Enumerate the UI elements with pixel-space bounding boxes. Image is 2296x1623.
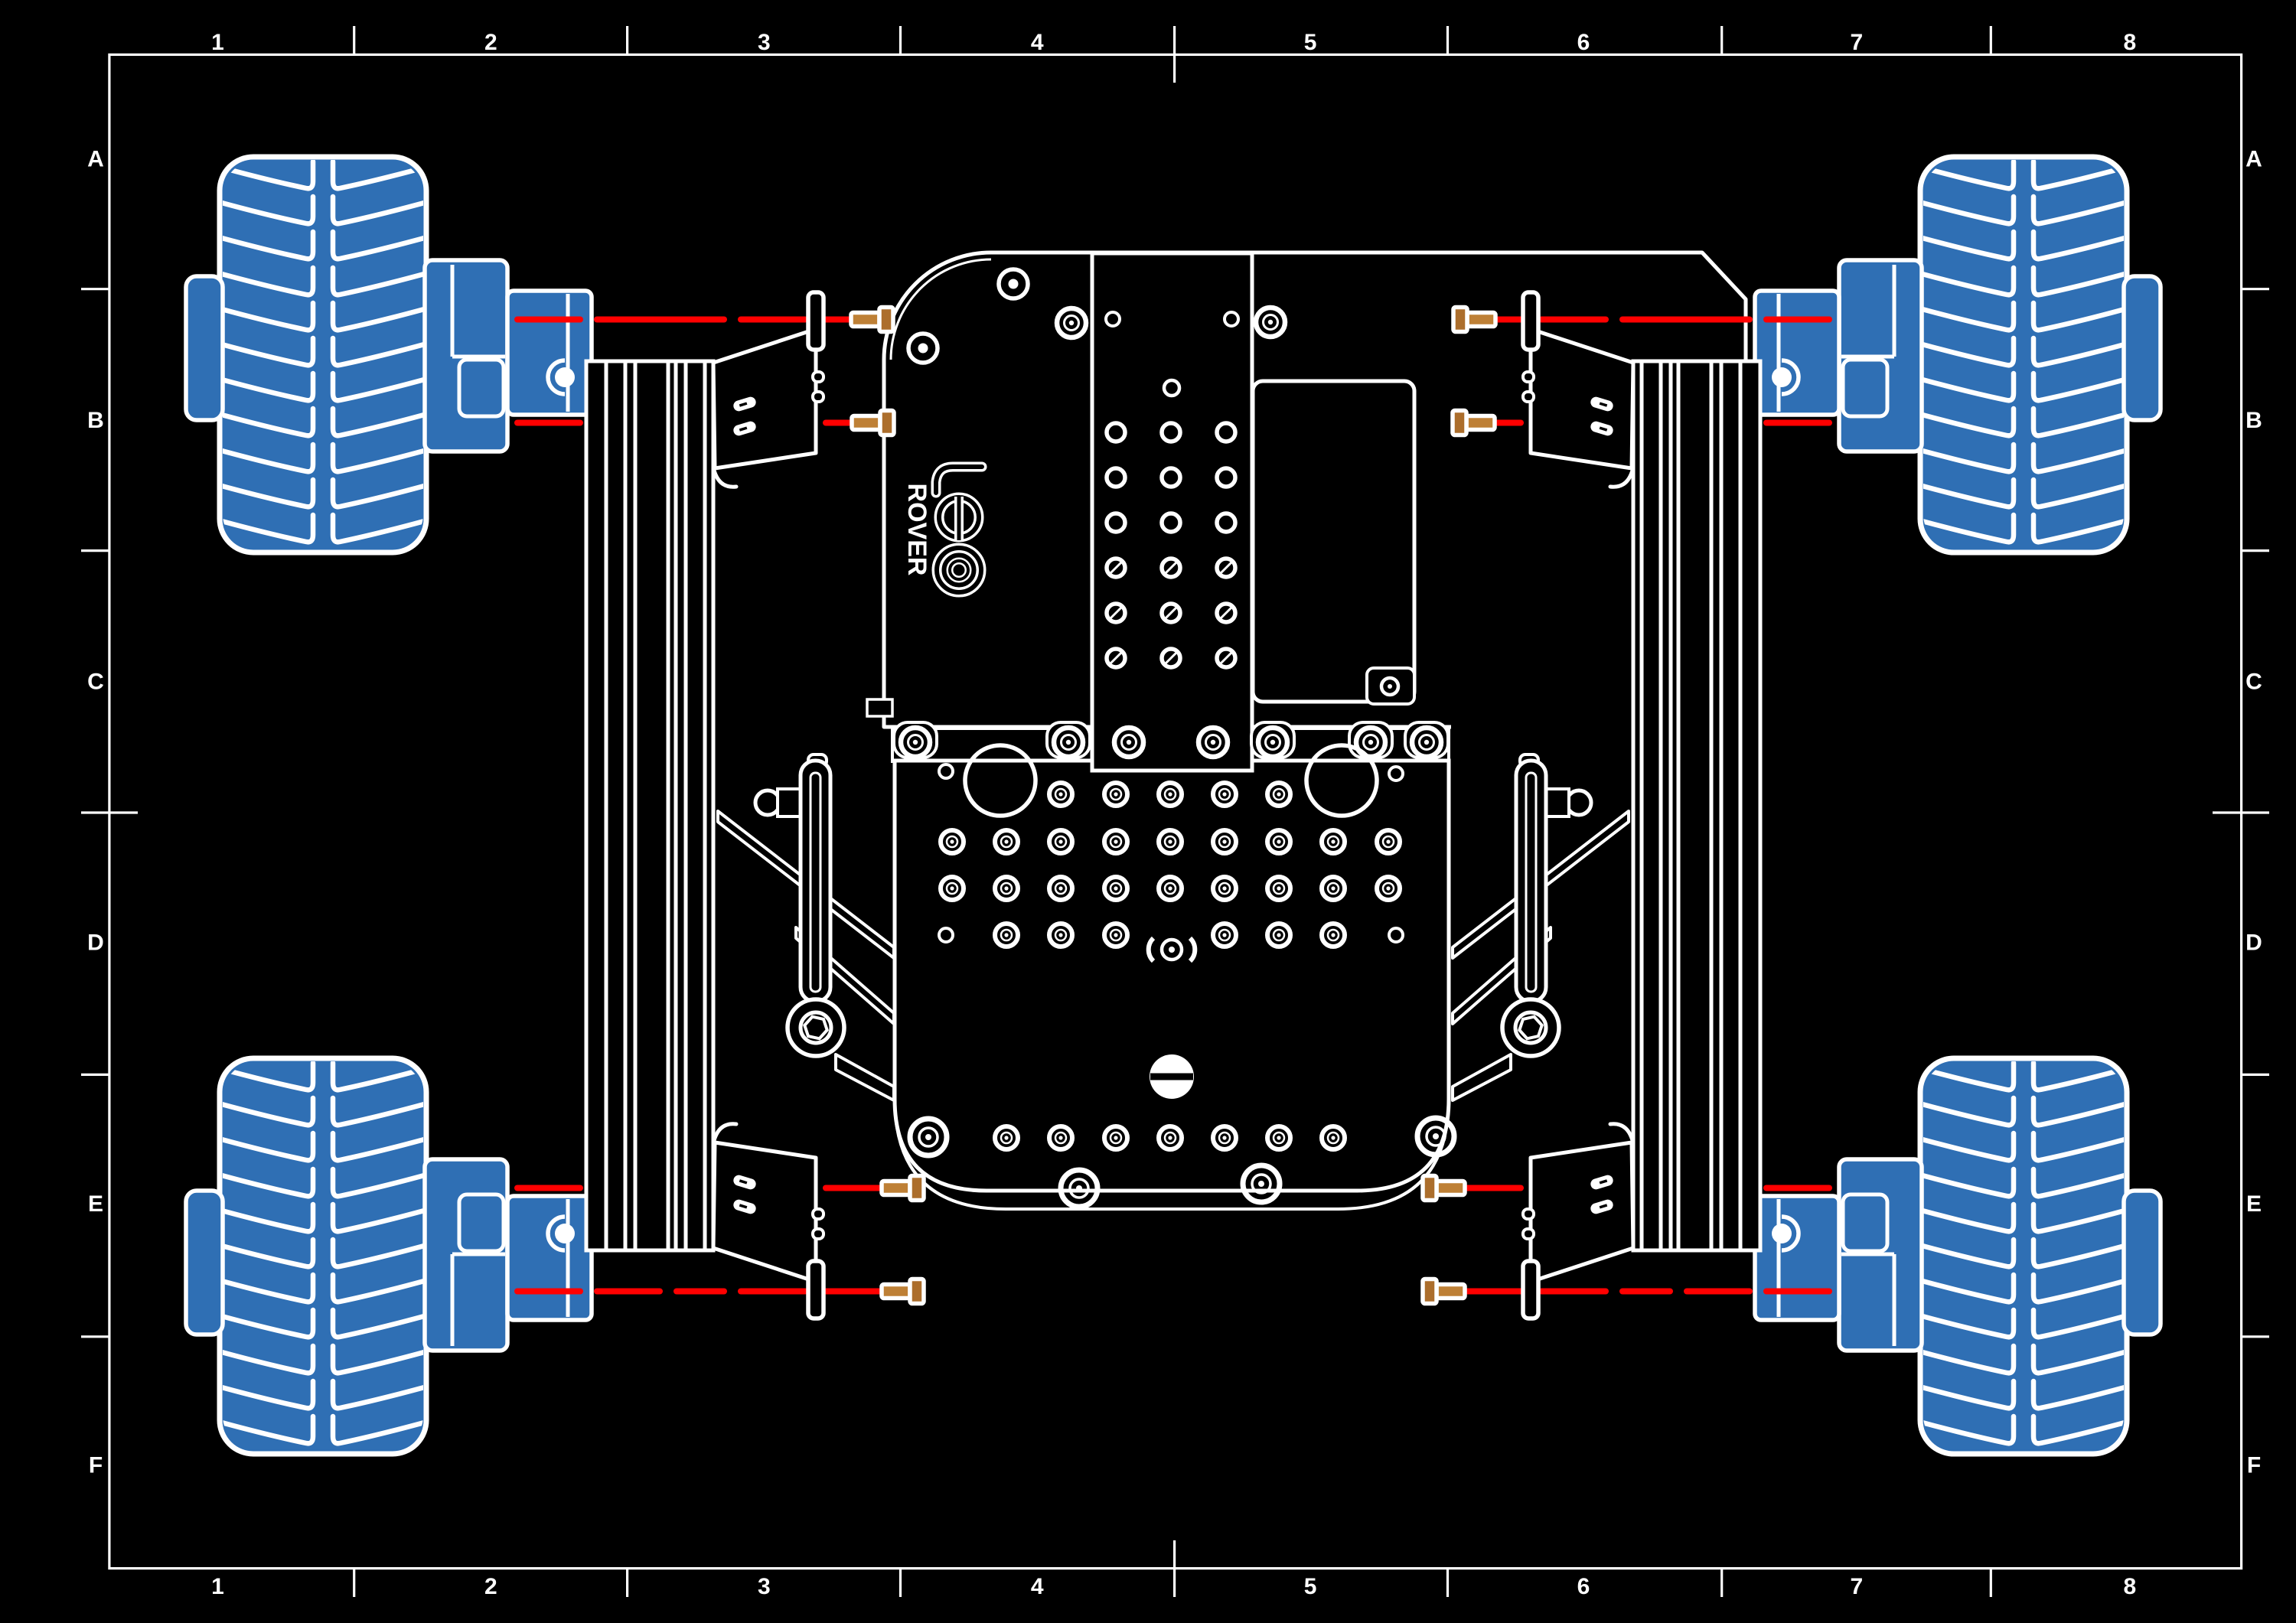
svg-text:2: 2 [484, 1574, 497, 1599]
svg-text:E: E [2246, 1191, 2262, 1217]
svg-text:B: B [2245, 408, 2262, 433]
svg-text:4: 4 [1031, 30, 1044, 55]
svg-text:ROVER: ROVER [902, 484, 931, 576]
svg-text:8: 8 [2123, 30, 2136, 55]
svg-text:C: C [87, 669, 104, 694]
svg-text:7: 7 [1851, 30, 1864, 55]
svg-text:C: C [2245, 669, 2262, 694]
svg-text:F: F [2247, 1453, 2261, 1478]
svg-text:1: 1 [211, 30, 224, 55]
svg-text:3: 3 [758, 1574, 771, 1599]
svg-text:4: 4 [1031, 1574, 1044, 1599]
svg-text:F: F [89, 1453, 103, 1478]
svg-text:E: E [88, 1191, 103, 1217]
svg-text:8: 8 [2123, 1574, 2136, 1599]
svg-text:5: 5 [1304, 30, 1317, 55]
svg-text:D: D [2245, 930, 2262, 956]
svg-text:6: 6 [1577, 30, 1590, 55]
svg-text:3: 3 [758, 30, 771, 55]
svg-text:A: A [2245, 147, 2262, 172]
svg-text:A: A [87, 147, 104, 172]
svg-text:7: 7 [1851, 1574, 1864, 1599]
svg-text:B: B [87, 408, 104, 433]
svg-text:6: 6 [1577, 1574, 1590, 1599]
svg-text:1: 1 [211, 1574, 224, 1599]
svg-text:D: D [87, 930, 104, 956]
svg-text:2: 2 [484, 30, 497, 55]
svg-text:5: 5 [1304, 1574, 1317, 1599]
